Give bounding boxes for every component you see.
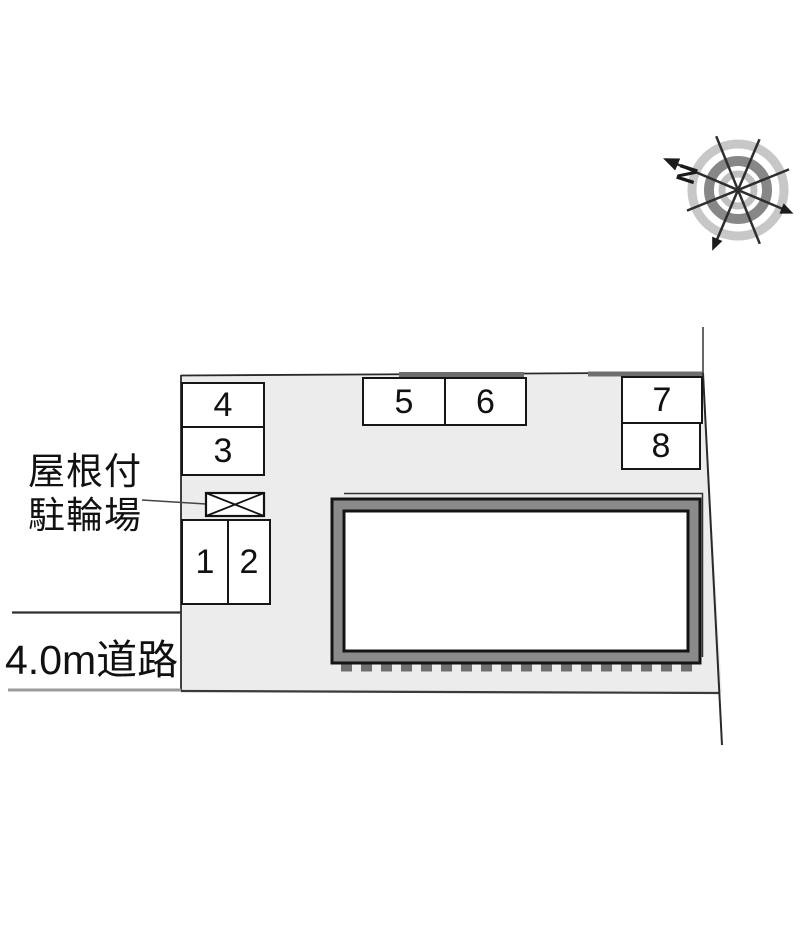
parking-space-2-number: 2 (240, 545, 259, 579)
parking-space-8-number: 8 (652, 429, 671, 463)
bicycle-shed-label-line2: 駐輪場 (28, 494, 142, 538)
parking-space-1: 1 (181, 519, 229, 605)
building-inner-floor (344, 511, 688, 651)
parking-space-3-number: 3 (214, 434, 233, 468)
parking-space-6: 6 (444, 377, 527, 426)
parking-space-6-number: 6 (476, 385, 495, 419)
building (332, 494, 703, 669)
parking-space-4-number: 4 (214, 388, 233, 422)
parking-space-8: 8 (621, 422, 701, 470)
parking-space-4: 4 (181, 382, 265, 428)
parking-space-5: 5 (362, 377, 446, 426)
parking-space-7: 7 (621, 376, 703, 424)
bicycle-shed-label: 屋根付 駐輪場 (28, 450, 142, 538)
site-plan-page: N 4 3 5 6 7 8 1 2 屋根付 駐輪場 4.0m道路 (0, 0, 800, 941)
parking-space-1-number: 1 (196, 545, 215, 579)
compass-rose: N (663, 136, 794, 251)
parking-space-7-number: 7 (653, 383, 672, 417)
parking-space-3: 3 (181, 426, 265, 476)
parking-space-5-number: 5 (395, 385, 414, 419)
bicycle-shed-label-line1: 屋根付 (28, 450, 142, 494)
parking-space-2: 2 (227, 519, 271, 605)
road-label: 4.0m道路 (5, 626, 178, 686)
